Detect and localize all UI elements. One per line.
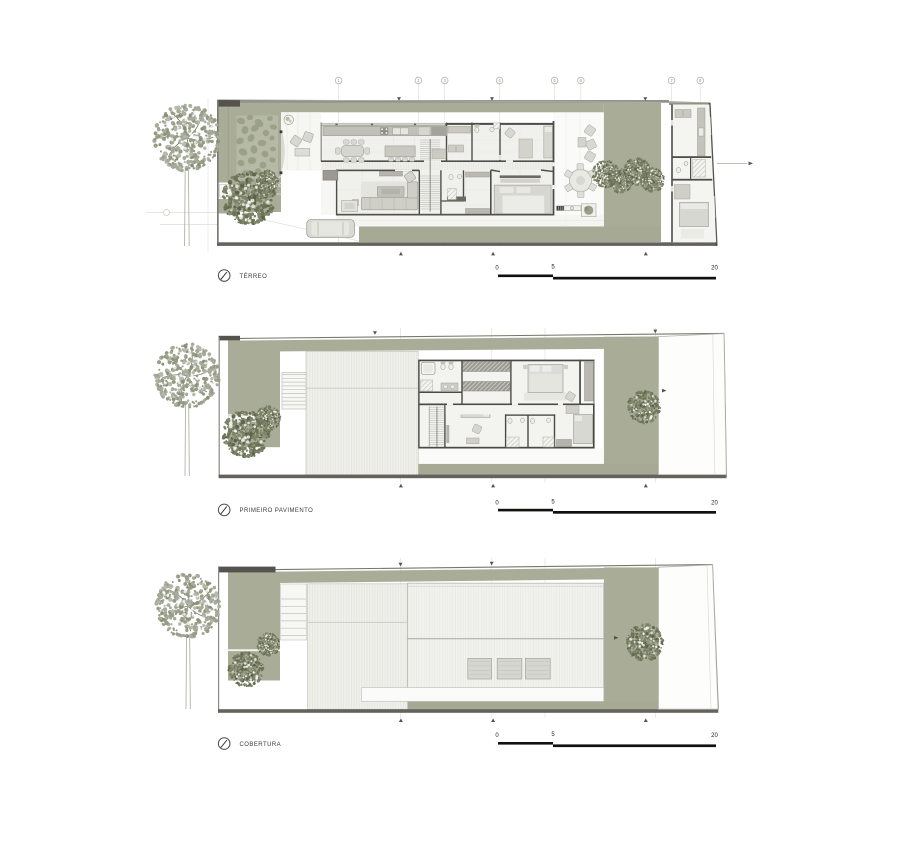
svg-text:20: 20 (711, 733, 718, 739)
svg-text:20: 20 (711, 501, 718, 507)
svg-text:5: 5 (551, 264, 555, 270)
svg-text:0: 0 (495, 266, 499, 272)
svg-text:TÉRREO: TÉRREO (240, 273, 268, 280)
svg-text:5: 5 (551, 732, 555, 738)
svg-text:COBERTURA: COBERTURA (240, 742, 282, 748)
svg-text:5: 5 (551, 499, 555, 505)
svg-text:0: 0 (495, 501, 499, 507)
svg-text:0: 0 (495, 733, 499, 739)
svg-text:PRIMEIRO PAVIMENTO: PRIMEIRO PAVIMENTO (240, 508, 314, 514)
svg-text:20: 20 (711, 266, 718, 272)
